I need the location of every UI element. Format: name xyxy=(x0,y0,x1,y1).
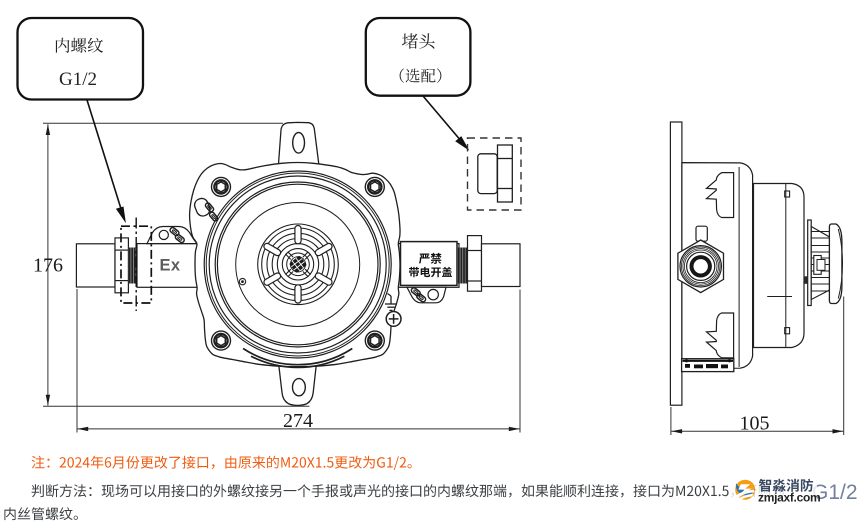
svg-text:176: 176 xyxy=(33,255,63,277)
svg-text:G1/2: G1/2 xyxy=(59,69,97,90)
svg-text:Ex: Ex xyxy=(160,257,181,275)
svg-text:105: 105 xyxy=(740,413,770,435)
svg-text:zmjaxf.com: zmjaxf.com xyxy=(758,491,820,505)
svg-text:274: 274 xyxy=(283,410,313,432)
